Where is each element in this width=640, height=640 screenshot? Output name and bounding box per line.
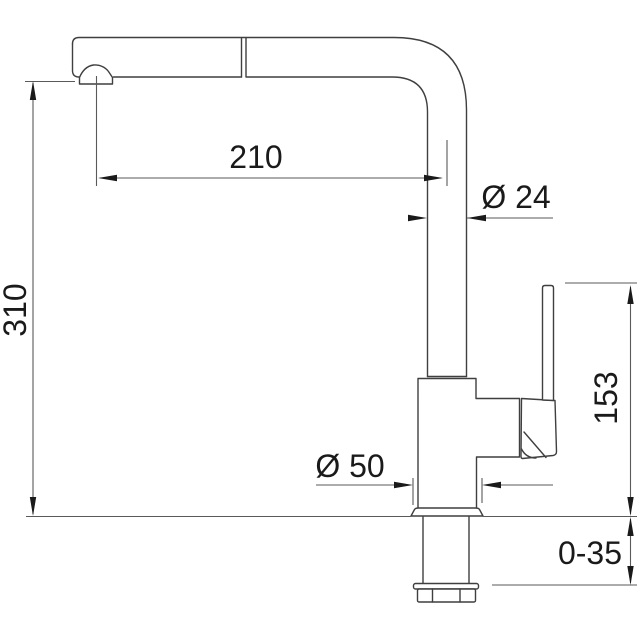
- dimension-pipe-diameter: Ø 24: [408, 179, 553, 221]
- total-height-arrow-down: [30, 497, 36, 516]
- spout-reach-arrow-left: [98, 175, 117, 181]
- base-diameter-arrow-left: [394, 482, 413, 488]
- faucet-outline: [73, 38, 557, 603]
- spout-reach-arrow-right: [424, 175, 443, 181]
- deck-thickness-arrow-up: [627, 517, 633, 536]
- mounting-nut: [418, 589, 476, 602]
- deck-thickness-arrow-down: [627, 566, 633, 585]
- dim-label-spout-reach: 210: [229, 139, 282, 175]
- dimension-lever-height: 153: [565, 283, 637, 516]
- pipe-diameter-arrow-left: [408, 215, 427, 221]
- spray-head-left-edge: [73, 44, 80, 77]
- spout-bottom-edge-right: [247, 77, 428, 377]
- dim-label-total-height: 310: [0, 283, 33, 336]
- dimension-spout-reach: 210: [97, 76, 448, 186]
- base-diameter-arrow-right: [482, 482, 501, 488]
- base-flange: [411, 508, 483, 516]
- threaded-shank: [423, 517, 469, 583]
- drawing-svg: 310 210 Ø 24 Ø 50: [0, 0, 640, 640]
- faucet-dimension-drawing: 310 210 Ø 24 Ø 50: [0, 0, 640, 640]
- lever-handle-rod: [543, 286, 554, 401]
- pullout-head-seam: [242, 38, 247, 77]
- dim-label-pipe-diameter: Ø 24: [481, 179, 550, 215]
- lever-height-arrow-down: [627, 497, 633, 516]
- total-height-arrow-up: [30, 81, 36, 100]
- mounting-washer: [414, 584, 479, 590]
- dim-label-base-diameter: Ø 50: [315, 448, 384, 484]
- dim-label-lever-height: 153: [588, 371, 624, 424]
- dimension-deck-thickness: 0-35: [492, 517, 637, 585]
- dimension-total-height: 310: [0, 81, 75, 516]
- spout-outer-contour: [73, 38, 467, 377]
- lever-height-arrow-up: [627, 285, 633, 304]
- pipe-diameter-arrow-right: [467, 215, 486, 221]
- faucet-body: [418, 379, 520, 509]
- dim-label-deck-thickness: 0-35: [558, 535, 622, 571]
